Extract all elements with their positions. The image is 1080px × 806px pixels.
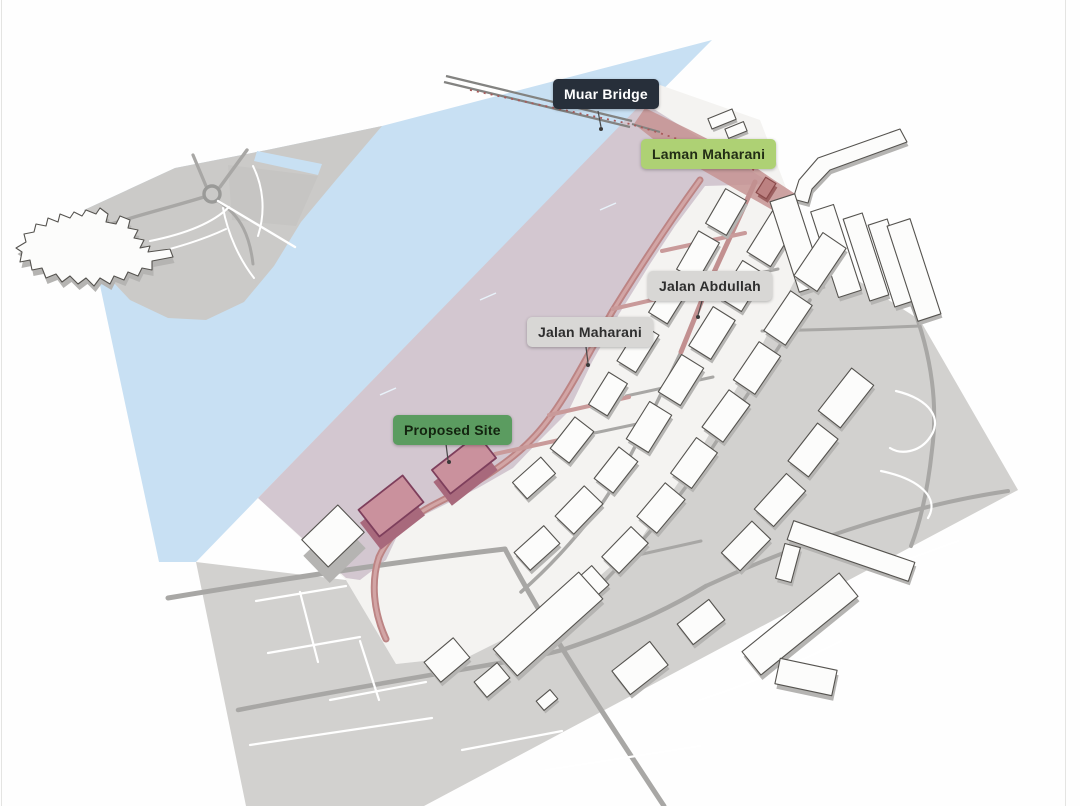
muar-bridge-leader-dot	[599, 127, 603, 131]
jalan-abdullah-leader-dot	[696, 315, 700, 319]
proposed-site-leader-dot	[447, 460, 451, 464]
road-minor-white	[546, 746, 700, 770]
jalan-maharani-leader-dot	[586, 363, 590, 367]
page-right-edge	[1065, 0, 1066, 806]
map-viewport: Muar Bridge Laman Maharani Jalan Abdulla…	[0, 0, 1080, 806]
site-map-canvas[interactable]	[0, 0, 1080, 806]
page-left-edge	[1, 0, 2, 806]
